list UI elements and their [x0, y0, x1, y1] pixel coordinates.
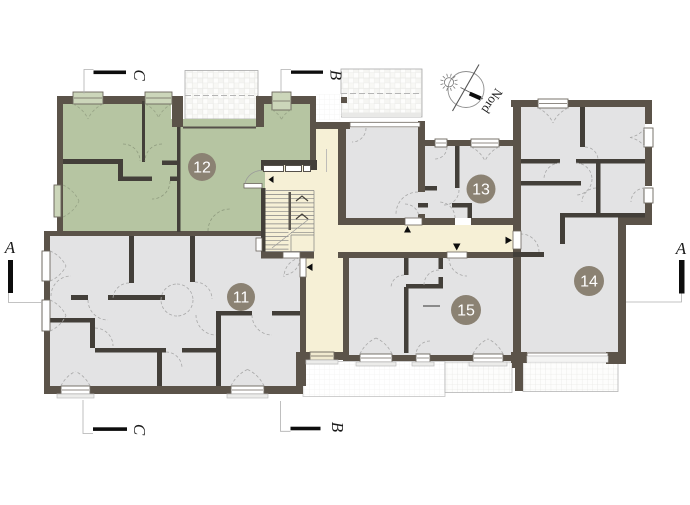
svg-text:11: 11 [233, 290, 250, 307]
svg-text:A: A [675, 239, 687, 258]
svg-text:14: 14 [580, 274, 598, 291]
svg-text:C: C [130, 69, 149, 81]
svg-text:A: A [4, 238, 16, 257]
svg-text:12: 12 [193, 160, 211, 177]
svg-text:C: C [130, 424, 149, 436]
svg-text:B: B [327, 70, 346, 81]
svg-text:15: 15 [457, 303, 475, 320]
svg-text:B: B [328, 422, 347, 433]
svg-text:13: 13 [472, 182, 490, 199]
